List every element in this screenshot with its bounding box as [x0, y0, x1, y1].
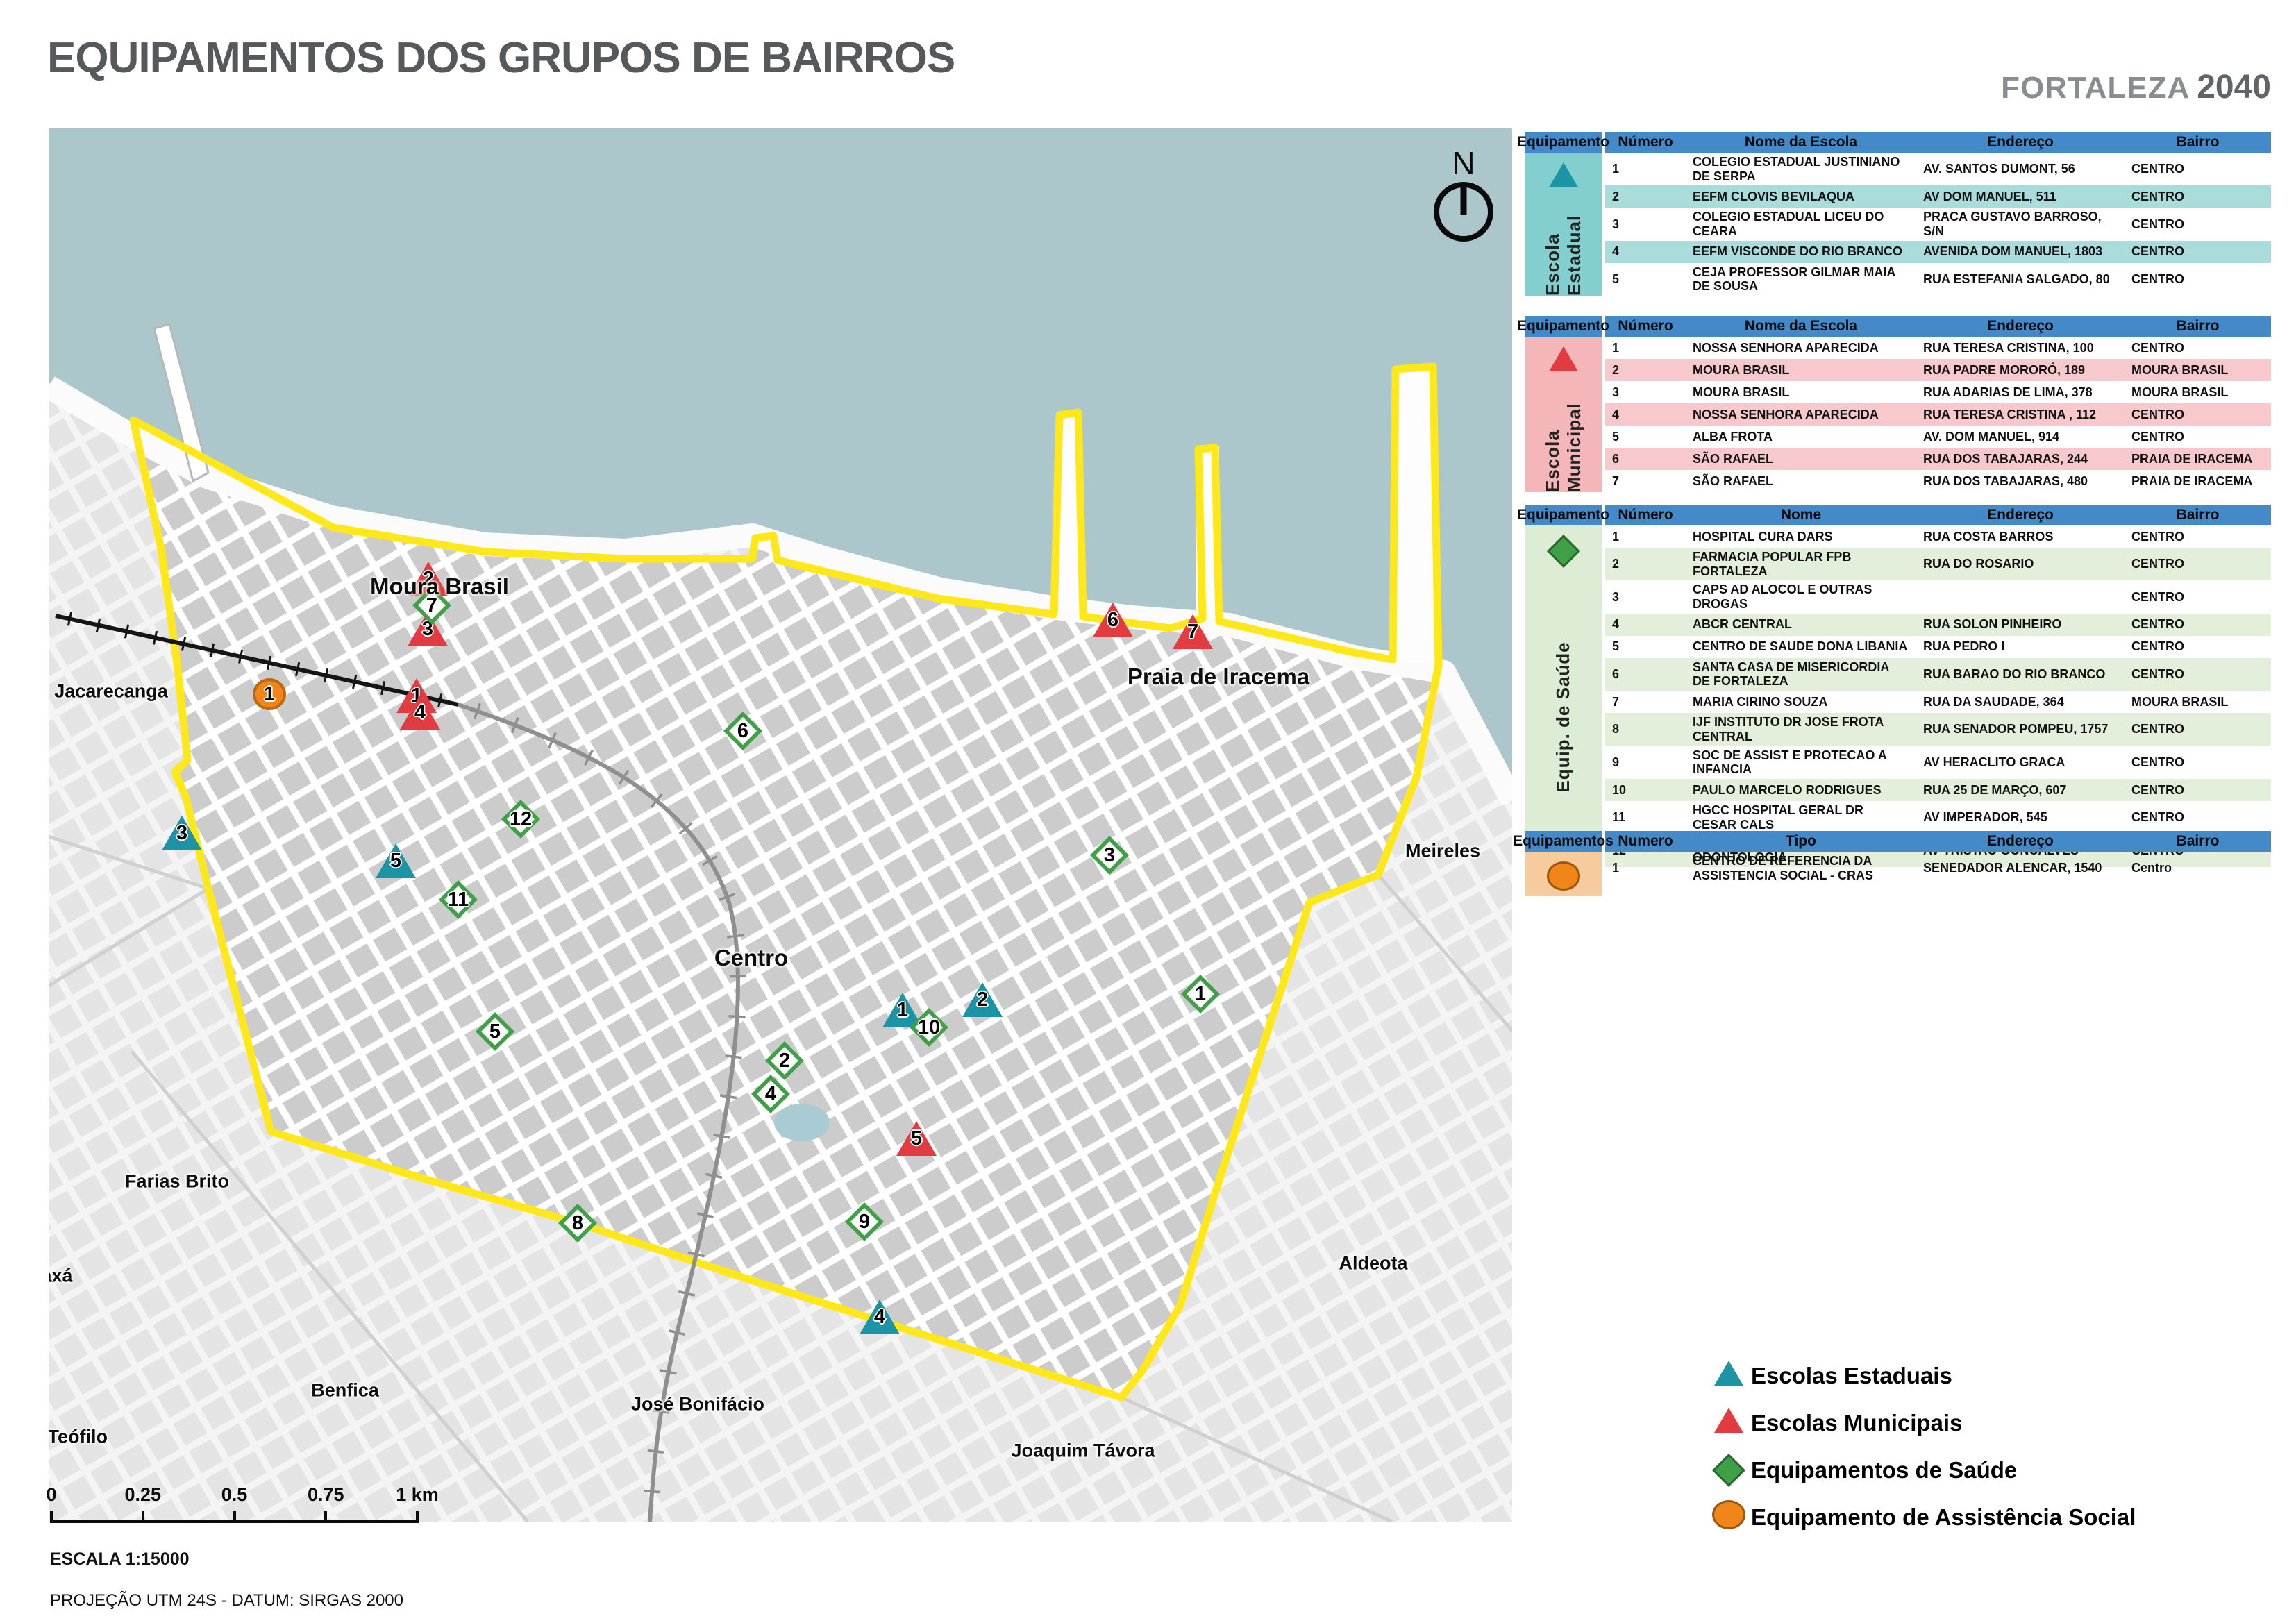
map-area-label: Jacarecanga: [54, 681, 168, 703]
table-body: Equip. de Saúde1HOSPITAL CURA DARSRUA CO…: [1525, 525, 2271, 867]
legend-diamond-icon: [1712, 1454, 1745, 1487]
table-cell: RUA BARAO DO RIO BRANCO: [1916, 658, 2125, 691]
map-area-label: Meireles: [1405, 841, 1480, 862]
table-cell: MOURA BRASIL: [2125, 691, 2271, 713]
scalebar-tick: [416, 1511, 419, 1523]
table-cell: CAPS AD ALOCOL E OUTRAS DROGAS: [1686, 580, 1916, 613]
table-row: 3COLEGIO ESTADUAL LICEU DO CEARAPRACA GU…: [1605, 208, 2271, 240]
table-row: 2MOURA BRASILRUA PADRE MORORÓ, 189MOURA …: [1605, 359, 2271, 381]
table-cell: CENTRO: [2125, 426, 2271, 448]
map-area-label: dolfo Teófilo: [49, 1427, 108, 1448]
table-cell: SANTA CASA DE MISERICORDIA DE FORTALEZA: [1686, 658, 1916, 691]
table-header-row: EquipamentoNúmeroNomeEndereçoBairro: [1525, 505, 2271, 525]
map-area-label: Centro: [714, 945, 788, 971]
table-cell: CENTRO: [2125, 614, 2271, 636]
marker-saude-10: 10: [908, 1009, 950, 1046]
marker-saude-1: 1: [1180, 975, 1221, 1013]
marker-saude-12: 12: [500, 800, 542, 838]
legend-icon-wrap: [1707, 1361, 1751, 1391]
column-header: Bairro: [2125, 505, 2271, 525]
marker-number: 3: [176, 823, 187, 843]
column-header: Bairro: [2125, 831, 2271, 852]
table-row: 4NOSSA SENHORA APARECIDARUA TERESA CRIST…: [1605, 403, 2271, 426]
table-cell: SÃO RAFAEL: [1686, 448, 1916, 470]
marker-estadual-5: 5: [375, 842, 417, 880]
table-cell: CENTRO: [2125, 403, 2271, 426]
table-cell: 1: [1605, 337, 1686, 359]
table-cell: CENTRO: [2125, 263, 2271, 296]
table-cell: 2: [1605, 359, 1686, 381]
table-rows: 1COLEGIO ESTADUAL JUSTINIANO DE SERPAAV.…: [1605, 153, 2271, 296]
marker-number: 8: [572, 1213, 583, 1234]
map-area-label: ue Araxá: [49, 1265, 73, 1287]
scalebar-tick-label: 0: [46, 1484, 56, 1506]
map-area-label: Joaquim Távora: [1011, 1440, 1155, 1462]
legend-item: Escolas Municipais: [1707, 1399, 2136, 1447]
table-cell: CENTRO: [2125, 337, 2271, 359]
table-cell: 11: [1605, 801, 1686, 834]
table-cell: 3: [1605, 381, 1686, 403]
table-cell: 4: [1605, 403, 1686, 426]
table-header-row: EquipamentoNúmeroNome da EscolaEndereçoB…: [1525, 132, 2271, 153]
table-row: 2FARMACIA POPULAR FPB FORTALEZARUA DO RO…: [1605, 548, 2271, 580]
marker-municipal-7: 7: [1172, 613, 1214, 650]
group-label: Escola Municipal: [1542, 377, 1585, 492]
table-body: Escola Municipal1NOSSA SENHORA APARECIDA…: [1525, 337, 2271, 492]
table-cell: 2: [1605, 185, 1686, 208]
table-row: 4ABCR CENTRALRUA SOLON PINHEIROCENTRO: [1605, 614, 2271, 636]
table-cell: PRAIA DE IRACEMA: [2125, 448, 2271, 470]
legend-label: Equipamento de Assistência Social: [1751, 1504, 2136, 1531]
table-cell: RUA PADRE MORORÓ, 189: [1916, 359, 2125, 381]
table-cell: 1: [1605, 525, 1686, 548]
column-header: Tipo: [1686, 831, 1916, 852]
legend-item: Escolas Estaduais: [1707, 1352, 2136, 1399]
table-cell: CENTRO: [2125, 801, 2271, 834]
table-cell: 1: [1605, 852, 1686, 884]
table-cell: 4: [1605, 241, 1686, 263]
table-cell: 9: [1605, 746, 1686, 779]
table-row: 7MARIA CIRINO SOUZARUA DA SAUDADE, 364MO…: [1605, 691, 2271, 713]
table-cell: HOSPITAL CURA DARS: [1686, 525, 1916, 548]
marker-municipal-6: 6: [1092, 601, 1134, 639]
table-rows: 1CENTRO DE REFERENCIA DA ASSISTENCIA SOC…: [1605, 852, 2271, 896]
column-header: Equipamentos: [1525, 831, 1605, 852]
table-cell: RUA SOLON PINHEIRO: [1916, 614, 2125, 636]
marker-number: 5: [911, 1129, 922, 1149]
column-header: Endereço: [1916, 132, 2125, 153]
table-row: 5ALBA FROTAAV. DOM MANUEL, 914CENTRO: [1605, 426, 2271, 448]
legend-triangle-icon: [1714, 1408, 1743, 1433]
table-body: 1CENTRO DE REFERENCIA DA ASSISTENCIA SOC…: [1525, 852, 2271, 896]
table-rows: 1HOSPITAL CURA DARSRUA COSTA BARROSCENTR…: [1605, 525, 2271, 867]
marker-number: 11: [448, 890, 469, 910]
table-cell: MOURA BRASIL: [2125, 359, 2271, 381]
marker-number: 10: [918, 1018, 940, 1038]
table-cell: RUA DO ROSARIO: [1916, 548, 2125, 580]
table-row: 10PAULO MARCELO RODRIGUESRUA 25 DE MARÇO…: [1605, 779, 2271, 801]
legend-circle-icon: [1712, 1500, 1745, 1529]
table-cell: SÃO RAFAEL: [1686, 470, 1916, 492]
diamond-icon: [1546, 535, 1579, 568]
table-cell: AVENIDA DOM MANUEL, 1803: [1916, 241, 2125, 263]
map: 1234567123451234567891011121JacarecangaM…: [49, 128, 1512, 1522]
table-cell: 8: [1605, 713, 1686, 746]
circle-icon: [1547, 861, 1580, 891]
marker-municipal-5: 5: [896, 1120, 937, 1157]
legend-icon-wrap: [1707, 1500, 1751, 1535]
column-header: Número: [1605, 316, 1686, 337]
table-cell: 7: [1605, 691, 1686, 713]
table-cell: CENTRO: [2125, 636, 2271, 658]
table-cell: MOURA BRASIL: [2125, 381, 2271, 403]
table-cell: CENTRO: [2125, 713, 2271, 746]
legend-item: Equipamento de Assistência Social: [1707, 1494, 2136, 1541]
table-cell: 1: [1605, 153, 1686, 185]
table-cell: CENTRO: [2125, 746, 2271, 779]
table-row: 5CEJA PROFESSOR GILMAR MAIA DE SOUSARUA …: [1605, 263, 2271, 296]
legend-icon-wrap: [1707, 1408, 1751, 1438]
table-cell: SOC DE ASSIST E PROTECAO A INFANCIA: [1686, 746, 1916, 779]
table-row: 9SOC DE ASSIST E PROTECAO A INFANCIAAV H…: [1605, 746, 2271, 779]
table-cell: RUA SENADOR POMPEU, 1757: [1916, 713, 2125, 746]
table-assistencia-social: EquipamentosNumeroTipoEndereçoBairro1CEN…: [1525, 831, 2271, 896]
table-cell: PRACA GUSTAVO BARROSO, S/N: [1916, 208, 2125, 240]
table-cell: NOSSA SENHORA APARECIDA: [1686, 337, 1916, 359]
table-cell: 10: [1605, 779, 1686, 801]
table-cell: AV. DOM MANUEL, 914: [1916, 426, 2125, 448]
marker-number: 4: [874, 1307, 885, 1327]
scalebar-tick-label: 1 km: [396, 1484, 439, 1506]
legend-item: Equipamentos de Saúde: [1707, 1447, 2136, 1494]
marker-estadual-2: 2: [962, 981, 1003, 1018]
table-cell: MARIA CIRINO SOUZA: [1686, 691, 1916, 713]
marker-saude-2: 2: [764, 1042, 805, 1079]
column-header: Bairro: [2125, 132, 2271, 153]
table-body: Escola Estadual1COLEGIO ESTADUAL JUSTINI…: [1525, 153, 2271, 296]
table-cell: MOURA BRASIL: [1686, 359, 1916, 381]
column-header: Numero: [1605, 831, 1686, 852]
scalebar-tick: [142, 1511, 144, 1523]
table-cell: ABCR CENTRAL: [1686, 614, 1916, 636]
table-row: 3CAPS AD ALOCOL E OUTRAS DROGASCENTRO: [1605, 580, 2271, 613]
table-cell: CENTRO: [2125, 185, 2271, 208]
column-header: Endereço: [1916, 831, 2125, 852]
table-cell: 7: [1605, 470, 1686, 492]
column-header: Equipamento: [1525, 316, 1605, 337]
marker-number: 2: [779, 1051, 790, 1071]
table-cell: CENTRO: [2125, 548, 2271, 580]
map-area-label: Moura Brasil: [370, 573, 509, 600]
table-cell: RUA TERESA CRISTINA, 100: [1916, 337, 2125, 359]
marker-number: 1: [264, 684, 275, 705]
table-cell: RUA DA SAUDADE, 364: [1916, 691, 2125, 713]
table-header-row: EquipamentosNumeroTipoEndereçoBairro: [1525, 831, 2271, 852]
table-cell: 2: [1605, 548, 1686, 580]
table-cell: AV DOM MANUEL, 511: [1916, 185, 2125, 208]
marker-estadual-4: 4: [859, 1298, 900, 1336]
legend-triangle-icon: [1714, 1361, 1743, 1386]
marker-number: 9: [859, 1212, 870, 1232]
legend-label: Equipamentos de Saúde: [1751, 1457, 2017, 1483]
brand-year: 2040: [2197, 69, 2271, 106]
page-title: EQUIPAMENTOS DOS GRUPOS DE BAIRROS: [47, 33, 955, 83]
table-cell: [1916, 580, 2125, 613]
table-row: 1HOSPITAL CURA DARSRUA COSTA BARROSCENTR…: [1605, 525, 2271, 548]
table-cell: CENTRO DE SAUDE DONA LIBANIA: [1686, 636, 1916, 658]
marker-social-1: 1: [249, 675, 290, 713]
table-cell: 6: [1605, 658, 1686, 691]
table-cell: AV HERACLITO GRACA: [1916, 746, 2125, 779]
column-header: Número: [1605, 505, 1686, 525]
table-row: 7SÃO RAFAELRUA DOS TABAJARAS, 480PRAIA D…: [1605, 470, 2271, 492]
map-overlay: 1234567123451234567891011121JacarecangaM…: [49, 128, 1512, 1522]
column-header: Equipamento: [1525, 505, 1605, 525]
table-cell: CENTRO: [2125, 241, 2271, 263]
table-row: 6SANTA CASA DE MISERICORDIA DE FORTALEZA…: [1605, 658, 2271, 691]
group-label: Escola Estadual: [1542, 193, 1585, 296]
table-cell: COLEGIO ESTADUAL LICEU DO CEARA: [1686, 208, 1916, 240]
scalebar-tick: [324, 1511, 327, 1523]
table-cell: AV IMPERADOR, 545: [1916, 801, 2125, 834]
table-cell: RUA TERESA CRISTINA , 112: [1916, 403, 2125, 426]
marker-number: 2: [977, 990, 988, 1010]
north-label: N: [1432, 147, 1495, 179]
table-cell: MOURA BRASIL: [1686, 381, 1916, 403]
column-header: Nome da Escola: [1686, 132, 1916, 153]
table-row: 4EEFM VISCONDE DO RIO BRANCOAVENIDA DOM …: [1605, 241, 2271, 263]
scalebar-tick-label: 0.25: [124, 1484, 161, 1506]
marker-number: 4: [765, 1084, 776, 1104]
legend: Escolas EstaduaisEscolas MunicipaisEquip…: [1707, 1352, 2136, 1541]
table-cell: CEJA PROFESSOR GILMAR MAIA DE SOUSA: [1686, 263, 1916, 296]
table-cell: IJF INSTITUTO DR JOSE FROTA CENTRAL: [1686, 713, 1916, 746]
table-cell: COLEGIO ESTADUAL JUSTINIANO DE SERPA: [1686, 153, 1916, 185]
map-area-label: Aldeota: [1339, 1253, 1407, 1275]
table-cell: PRAIA DE IRACEMA: [2125, 470, 2271, 492]
marker-estadual-3: 3: [161, 814, 203, 852]
marker-number: 1: [1195, 984, 1206, 1004]
page: EQUIPAMENTOS DOS GRUPOS DE BAIRROS FORTA…: [0, 0, 2296, 1623]
table-cell: HGCC HOSPITAL GERAL DR CESAR CALS: [1686, 801, 1916, 834]
table-cell: CENTRO: [2125, 525, 2271, 548]
scalebar-tick: [50, 1511, 53, 1523]
map-area-label: José Bonifácio: [631, 1394, 764, 1415]
marker-number: 6: [737, 721, 748, 741]
table-cell: Centro: [2125, 852, 2271, 884]
table-header-row: EquipamentoNúmeroNome da EscolaEndereçoB…: [1525, 316, 2271, 337]
scalebar-tick: [233, 1511, 236, 1523]
group-cell: [1525, 852, 1605, 896]
table-cell: PAULO MARCELO RODRIGUES: [1686, 779, 1916, 801]
marker-number: 5: [390, 851, 401, 871]
column-header: Endereço: [1916, 316, 2125, 337]
table-row: 1COLEGIO ESTADUAL JUSTINIANO DE SERPAAV.…: [1605, 153, 2271, 185]
table-equip-saude: EquipamentoNúmeroNomeEndereçoBairroEquip…: [1525, 505, 2271, 867]
column-header: Nome: [1686, 505, 1916, 525]
table-cell: 5: [1605, 636, 1686, 658]
table-cell: CENTRO DE REFERENCIA DA ASSISTENCIA SOCI…: [1686, 852, 1916, 884]
column-header: Endereço: [1916, 505, 2125, 525]
legend-icon-wrap: [1707, 1454, 1751, 1486]
triangle-icon: [1549, 162, 1578, 187]
marker-saude-8: 8: [557, 1204, 598, 1242]
table-row: 3MOURA BRASILRUA ADARIAS DE LIMA, 378MOU…: [1605, 381, 2271, 403]
scalebar-tick-label: 0.75: [308, 1484, 344, 1506]
table-cell: RUA PEDRO I: [1916, 636, 2125, 658]
table-cell: CENTRO: [2125, 658, 2271, 691]
table-cell: CENTRO: [2125, 208, 2271, 240]
group-label: Equip. de Saúde: [1552, 567, 1574, 867]
scale-text: ESCALA 1:15000: [50, 1549, 190, 1570]
table-cell: 4: [1605, 614, 1686, 636]
marker-saude-5: 5: [474, 1013, 516, 1050]
map-area-label: Farias Brito: [125, 1171, 229, 1193]
table-cell: SENEDADOR ALENCAR, 1540: [1916, 852, 2125, 884]
group-cell: Escola Municipal: [1525, 337, 1605, 492]
column-header: Número: [1605, 132, 1686, 153]
marker-municipal-4: 4: [399, 693, 441, 731]
map-area-label: Benfica: [311, 1380, 379, 1402]
brand-name: FORTALEZA: [2001, 71, 2190, 105]
marker-saude-3: 3: [1089, 836, 1130, 874]
table-cell: CENTRO: [2125, 153, 2271, 185]
legend-label: Escolas Municipais: [1751, 1410, 1962, 1436]
table-cell: FARMACIA POPULAR FPB FORTALEZA: [1686, 548, 1916, 580]
table-cell: NOSSA SENHORA APARECIDA: [1686, 403, 1916, 426]
legend-label: Escolas Estaduais: [1751, 1363, 1952, 1389]
table-escola-estadual: EquipamentoNúmeroNome da EscolaEndereçoB…: [1525, 132, 2271, 296]
table-cell: AV. SANTOS DUMONT, 56: [1916, 153, 2125, 185]
group-cell: Escola Estadual: [1525, 153, 1605, 296]
scalebar: 00.250.50.751 km: [51, 1484, 482, 1530]
table-cell: 5: [1605, 426, 1686, 448]
projection-text: PROJEÇÃO UTM 24S - DATUM: SIRGAS 2000: [50, 1591, 403, 1611]
marker-saude-4: 4: [750, 1075, 791, 1113]
marker-saude-11: 11: [437, 881, 479, 918]
table-cell: CENTRO: [2125, 580, 2271, 613]
compass-icon: [1434, 182, 1493, 242]
marker-number: 12: [510, 809, 532, 830]
marker-number: 4: [414, 703, 426, 723]
column-header: Equipamento: [1525, 132, 1605, 153]
table-cell: EEFM VISCONDE DO RIO BRANCO: [1686, 241, 1916, 263]
marker-number: 5: [489, 1022, 501, 1042]
table-cell: EEFM CLOVIS BEVILAQUA: [1686, 185, 1916, 208]
table-cell: RUA ADARIAS DE LIMA, 378: [1916, 381, 2125, 403]
table-cell: 3: [1605, 208, 1686, 240]
table-cell: CENTRO: [2125, 779, 2271, 801]
table-escola-municipal: EquipamentoNúmeroNome da EscolaEndereçoB…: [1525, 316, 2271, 492]
table-cell: 6: [1605, 448, 1686, 470]
table-cell: RUA DOS TABAJARAS, 480: [1916, 470, 2125, 492]
table-cell: ALBA FROTA: [1686, 426, 1916, 448]
north-compass: N: [1432, 147, 1495, 242]
marker-number: 1: [897, 1000, 908, 1020]
table-row: 5CENTRO DE SAUDE DONA LIBANIARUA PEDRO I…: [1605, 636, 2271, 658]
marker-saude-9: 9: [844, 1203, 885, 1241]
marker-number: 7: [1187, 622, 1198, 642]
table-row: 1NOSSA SENHORA APARECIDARUA TERESA CRIST…: [1605, 337, 2271, 359]
group-cell: Equip. de Saúde: [1525, 525, 1605, 867]
table-cell: RUA ESTEFANIA SALGADO, 80: [1916, 263, 2125, 296]
table-row: 1CENTRO DE REFERENCIA DA ASSISTENCIA SOC…: [1605, 852, 2271, 884]
table-cell: RUA COSTA BARROS: [1916, 525, 2125, 548]
column-header: Bairro: [2125, 316, 2271, 337]
triangle-icon: [1549, 346, 1578, 371]
table-cell: RUA 25 DE MARÇO, 607: [1916, 779, 2125, 801]
table-cell: 5: [1605, 263, 1686, 296]
map-area-label: Praia de Iracema: [1128, 664, 1309, 690]
table-row: 11HGCC HOSPITAL GERAL DR CESAR CALSAV IM…: [1605, 801, 2271, 834]
scalebar-tick-label: 0.5: [221, 1484, 248, 1506]
brand-logo: FORTALEZA2040: [2001, 68, 2271, 106]
table-cell: 3: [1605, 580, 1686, 613]
table-cell: RUA DOS TABAJARAS, 244: [1916, 448, 2125, 470]
table-row: 6SÃO RAFAELRUA DOS TABAJARAS, 244PRAIA D…: [1605, 448, 2271, 470]
table-row: 8IJF INSTITUTO DR JOSE FROTA CENTRALRUA …: [1605, 713, 2271, 746]
column-header: Nome da Escola: [1686, 316, 1916, 337]
table-rows: 1NOSSA SENHORA APARECIDARUA TERESA CRIST…: [1605, 337, 2271, 492]
table-row: 2EEFM CLOVIS BEVILAQUAAV DOM MANUEL, 511…: [1605, 185, 2271, 208]
marker-number: 6: [1107, 610, 1118, 630]
marker-number: 3: [1104, 846, 1115, 866]
marker-saude-6: 6: [722, 712, 764, 750]
